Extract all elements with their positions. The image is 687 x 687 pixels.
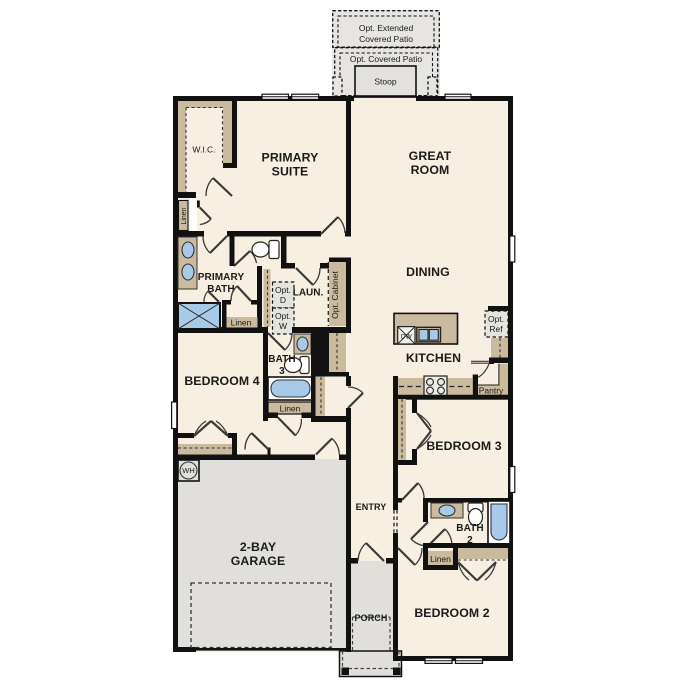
- svg-text:PRIMARY: PRIMARY: [262, 151, 319, 165]
- svg-text:SUITE: SUITE: [272, 165, 309, 179]
- svg-text:3: 3: [279, 366, 285, 377]
- svg-text:DINING: DINING: [406, 265, 450, 279]
- svg-text:ROOM: ROOM: [411, 163, 450, 177]
- svg-text:KITCHEN: KITCHEN: [406, 351, 461, 365]
- svg-text:ENTRY: ENTRY: [356, 502, 387, 512]
- svg-text:Opt.: Opt.: [488, 314, 504, 324]
- svg-text:DW: DW: [401, 334, 413, 341]
- svg-text:Linen: Linen: [430, 554, 451, 564]
- svg-text:BEDROOM 3: BEDROOM 3: [426, 439, 501, 453]
- svg-text:Linen: Linen: [280, 404, 301, 414]
- svg-text:Opt.: Opt.: [275, 285, 291, 295]
- svg-text:BEDROOM 4: BEDROOM 4: [184, 374, 259, 388]
- svg-text:PRIMARY: PRIMARY: [198, 272, 245, 283]
- svg-text:Pantry: Pantry: [479, 386, 504, 396]
- svg-text:BATH: BATH: [456, 523, 483, 534]
- svg-text:Linen: Linen: [181, 207, 188, 224]
- svg-text:Opt. Covered Patio: Opt. Covered Patio: [350, 54, 423, 64]
- svg-text:GARAGE: GARAGE: [231, 554, 286, 568]
- svg-text:Stoop: Stoop: [374, 77, 396, 87]
- svg-text:WH: WH: [182, 466, 195, 475]
- svg-text:Linen: Linen: [231, 318, 252, 328]
- svg-text:Opt. Cabinet: Opt. Cabinet: [330, 271, 340, 319]
- svg-text:D: D: [280, 295, 286, 305]
- svg-text:PORCH: PORCH: [354, 613, 387, 623]
- svg-text:Ref: Ref: [489, 324, 503, 334]
- svg-text:W: W: [279, 321, 287, 331]
- svg-text:BATH: BATH: [268, 354, 295, 365]
- svg-text:BEDROOM 2: BEDROOM 2: [414, 606, 489, 620]
- svg-text:W.I.C.: W.I.C.: [192, 145, 215, 155]
- svg-text:Opt. Extended: Opt. Extended: [359, 23, 414, 33]
- svg-text:Opt.: Opt.: [275, 311, 291, 321]
- svg-text:2-BAY: 2-BAY: [240, 540, 276, 554]
- svg-text:LAUN.: LAUN.: [293, 288, 324, 299]
- svg-text:Covered Patio: Covered Patio: [359, 34, 413, 44]
- svg-text:GREAT: GREAT: [409, 149, 452, 163]
